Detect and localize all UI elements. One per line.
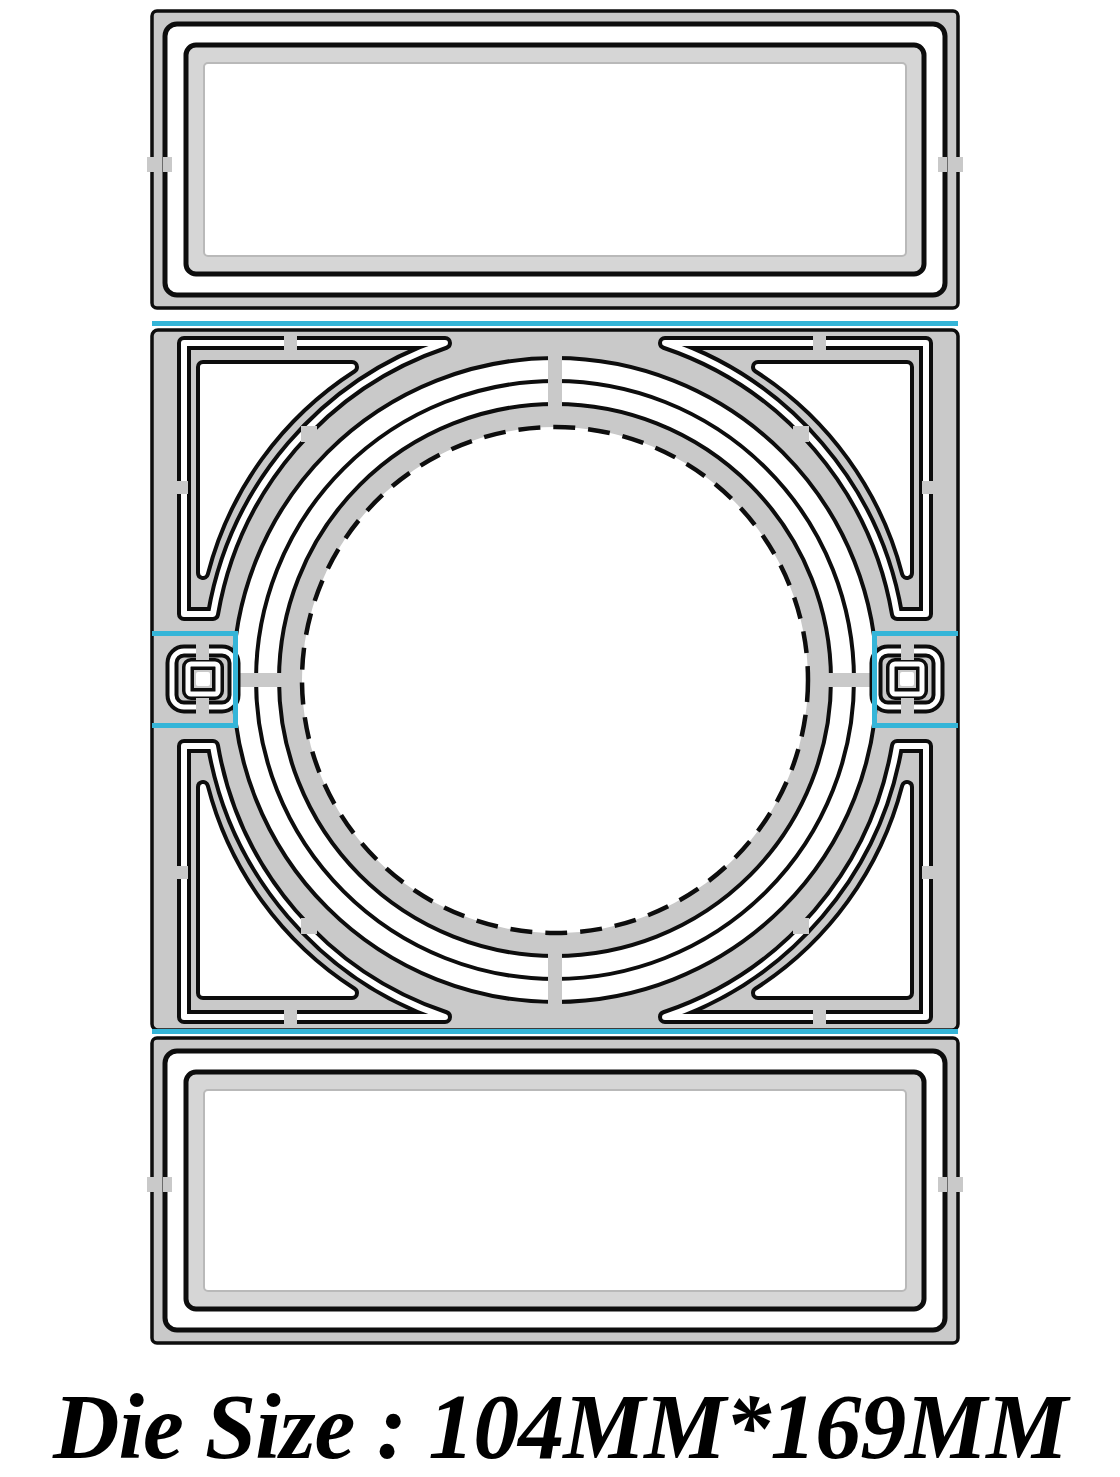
middle-frame-plate (152, 330, 958, 1030)
die-size-caption: Die Size : 104MM*169MM (6, 1380, 1115, 1473)
stitch-circle (302, 427, 808, 933)
top-rectangle-plate (147, 11, 963, 308)
die-illustration (0, 0, 1120, 1477)
product-illustration: Die Size : 104MM*169MM (0, 0, 1120, 1477)
registration-line-bottom (152, 1029, 958, 1034)
registration-right-square-bottom (872, 723, 958, 728)
registration-line-top (152, 321, 958, 326)
registration-left-square-side (233, 631, 238, 728)
bottom-rectangle-plate (147, 1038, 963, 1343)
registration-right-square-side (872, 631, 877, 728)
registration-left-square-top (152, 631, 238, 636)
registration-left-square-bottom (152, 723, 238, 728)
registration-right-square-top (872, 631, 958, 636)
